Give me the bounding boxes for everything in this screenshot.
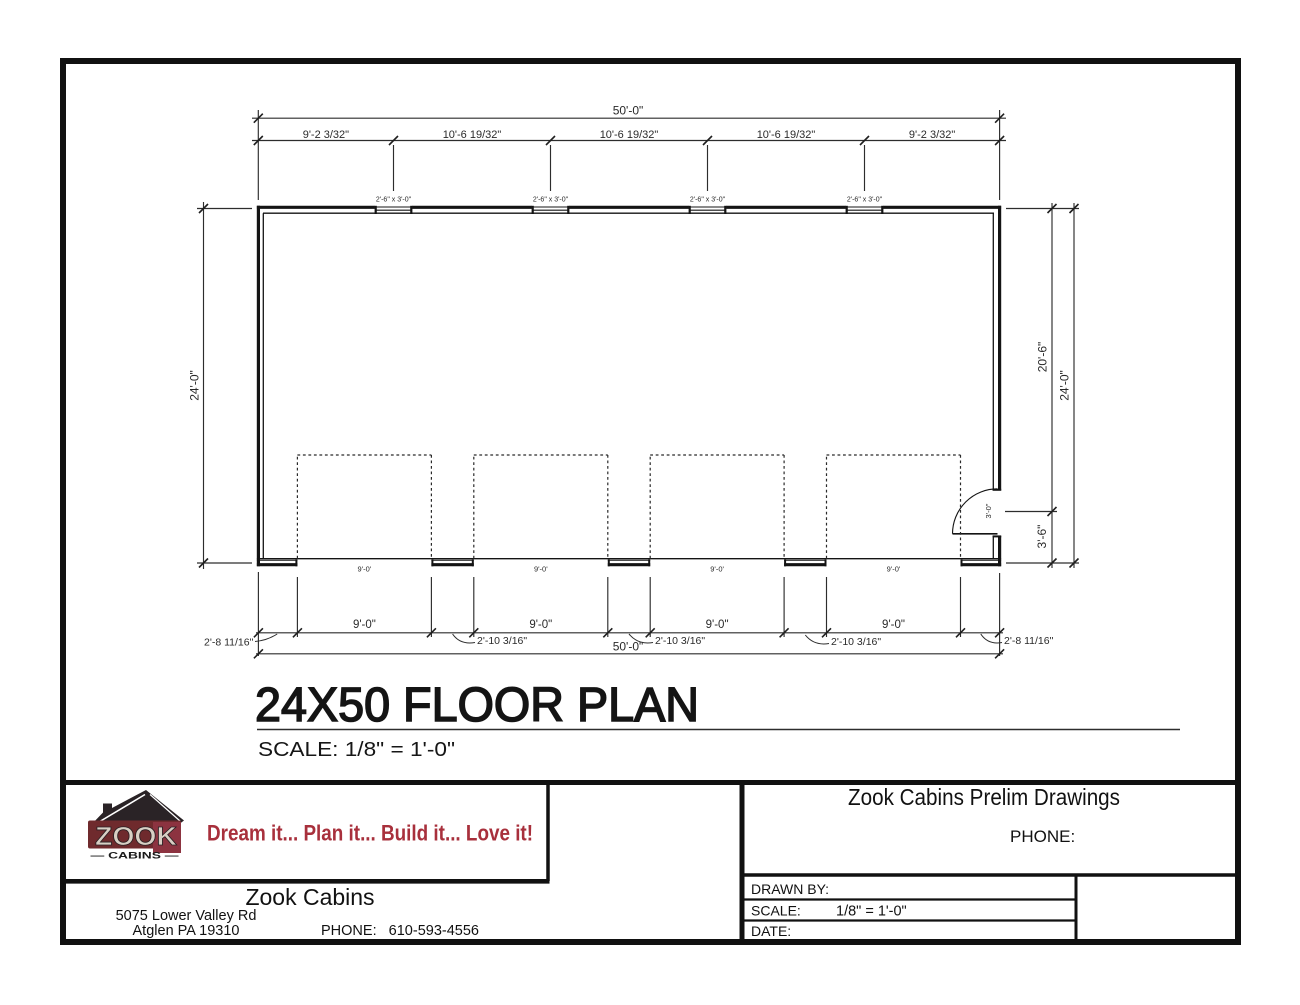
svg-text:SCALE: 1/8" = 1'-0": SCALE: 1/8" = 1'-0" [258,739,455,761]
svg-text:ZOOK: ZOOK [95,821,177,851]
svg-text:2'-6" x 3'-0": 2'-6" x 3'-0" [533,197,569,204]
svg-text:24'-0": 24'-0" [188,370,202,401]
svg-text:Zook Cabins: Zook Cabins [245,884,374,910]
svg-text:9'-0": 9'-0" [529,619,552,631]
svg-text:Dream it... Plan it... Build: Dream it... Plan it... Build it... Love … [207,821,533,846]
svg-text:10'-6 19/32": 10'-6 19/32" [757,129,816,141]
svg-text:9'-0': 9'-0' [534,565,548,574]
svg-text:9'-2 3/32": 9'-2 3/32" [909,129,955,141]
svg-text:9'-0': 9'-0' [710,565,724,574]
svg-text:2'-10 3/16": 2'-10 3/16" [655,635,705,647]
svg-text:2'-8 11/16": 2'-8 11/16" [204,637,254,649]
svg-text:9'-0": 9'-0" [882,619,905,631]
svg-text:5075 Lower Valley Rd: 5075 Lower Valley Rd [116,908,257,924]
svg-text:9'-2 3/32": 9'-2 3/32" [303,129,349,141]
svg-text:2'-10 3/16": 2'-10 3/16" [831,636,881,648]
svg-text:2'-6" x 3'-0": 2'-6" x 3'-0" [376,197,412,204]
svg-text:Atglen PA 19310: Atglen PA 19310 [133,923,240,939]
svg-text:3'-0": 3'-0" [984,503,993,518]
svg-text:2'-6" x 3'-0": 2'-6" x 3'-0" [847,197,883,204]
svg-text:3'-6": 3'-6" [1035,525,1049,549]
svg-text:2'-6" x 3'-0": 2'-6" x 3'-0" [690,197,726,204]
svg-text:24X50 FLOOR PLAN: 24X50 FLOOR PLAN [255,679,699,732]
svg-text:— CABINS —: — CABINS — [91,851,180,862]
svg-text:2'-8 11/16": 2'-8 11/16" [1004,635,1054,647]
svg-text:PHONE: 610-593-4556: PHONE: 610-593-4556 [321,923,479,939]
svg-text:1/8" = 1'-0": 1/8" = 1'-0" [836,904,907,920]
svg-text:DATE:: DATE: [751,923,791,939]
svg-text:9'-0': 9'-0' [358,565,372,574]
svg-text:50'-0": 50'-0" [613,640,644,654]
svg-text:50'-0": 50'-0" [613,104,644,118]
svg-text:20'-6": 20'-6" [1036,342,1050,373]
svg-text:10'-6 19/32": 10'-6 19/32" [600,129,659,141]
svg-text:PHONE:: PHONE: [1010,827,1075,846]
svg-text:Zook Cabins Prelim Drawings: Zook Cabins Prelim Drawings [848,784,1120,810]
svg-text:9'-0": 9'-0" [706,619,729,631]
svg-text:24'-0": 24'-0" [1058,370,1072,401]
svg-text:2'-10 3/16": 2'-10 3/16" [477,635,527,647]
svg-text:9'-0": 9'-0" [353,619,376,631]
svg-text:DRAWN BY:: DRAWN BY: [751,881,829,897]
svg-text:9'-0': 9'-0' [887,565,901,574]
svg-text:10'-6 19/32": 10'-6 19/32" [443,129,502,141]
svg-text:SCALE:: SCALE: [751,903,801,919]
